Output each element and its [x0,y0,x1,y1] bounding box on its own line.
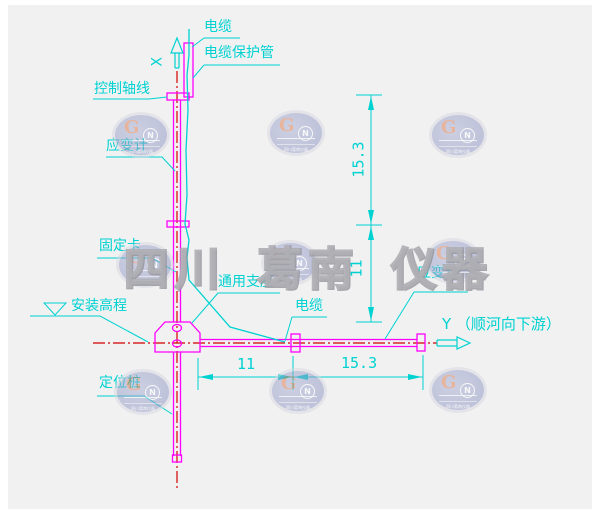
label-cable-top: 电缆 [204,20,232,35]
instrument-structure [155,43,425,462]
label-positioning-pile: 定位桩 [99,376,141,391]
label-y-axis: Y （顺河向下游） [442,316,561,333]
support-hole-upper [173,325,182,332]
dimension-lines [198,95,423,390]
label-fixing-clamp: 固定卡 [99,239,141,254]
cad-linework [0,0,600,514]
label-universal-support: 通用支座 [218,275,274,290]
y-axis-arrow [437,340,457,346]
cable-line [185,29,285,342]
label-install-elevation: 安装高程 [71,299,127,314]
dim-vertical-lower: 11 [350,249,365,289]
label-cable-right: 电缆 [295,299,323,314]
label-strain-gauge-right: 应变计 [417,266,459,281]
label-x-axis: X [150,54,165,70]
dim-vertical-upper: 15.3 [352,140,367,180]
dim-horizontal-left: 11 [237,357,255,372]
x-axis-arrow [175,53,179,68]
label-strain-gauge-left: 应变计 [106,139,148,154]
cad-drawing-page: 电缆 电缆保护管 控制轴线 应变计 固定卡 通用支座 安装高程 定位桩 应变计 … [0,0,600,514]
dimension-arrows [199,96,422,380]
label-cable-protection-pipe: 电缆保护管 [204,46,274,61]
dim-horizontal-right: 15.3 [341,356,377,371]
label-control-axis: 控制轴线 [94,82,150,97]
